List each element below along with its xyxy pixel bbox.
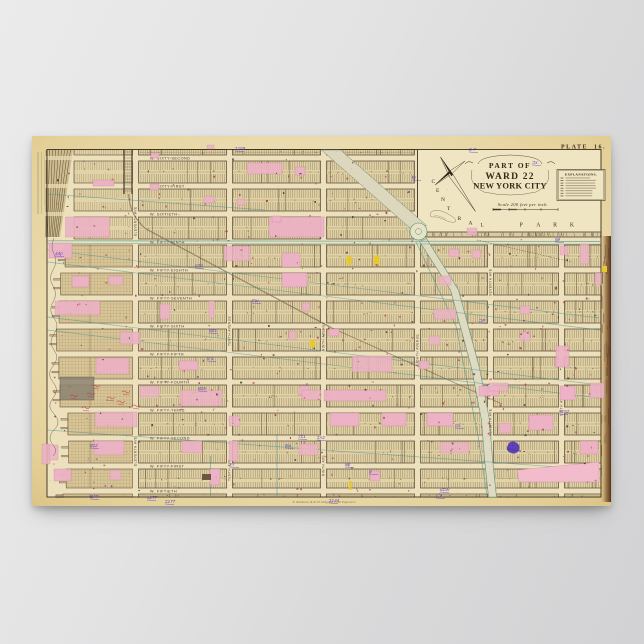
- svg-text:≠177: ≠177: [147, 495, 158, 500]
- svg-text:44ɲ: 44ɲ: [55, 251, 63, 256]
- svg-text:8·1: 8·1: [207, 356, 214, 361]
- svg-text:7≠1: 7≠1: [298, 434, 306, 439]
- svg-text:R: R: [458, 216, 462, 222]
- svg-text:PLATE 16.: PLATE 16.: [561, 145, 606, 151]
- svg-text:Scale 200 feet per inch.: Scale 200 feet per inch.: [498, 202, 548, 207]
- svg-text:R: R: [553, 223, 557, 229]
- svg-text:W. FIFTY-SEVENTH: W. FIFTY-SEVENTH: [150, 296, 192, 300]
- svg-text:SEVENTH AVE: SEVENTH AVE: [489, 409, 493, 436]
- svg-text:Fɯ: Fɯ: [252, 298, 259, 303]
- svg-text:W. FIFTY-NINTH: W. FIFTY-NINTH: [150, 240, 185, 244]
- svg-text:ɬ9: ɬ9: [411, 175, 416, 180]
- svg-text:N: N: [441, 197, 445, 203]
- svg-text:8≠5: 8≠5: [209, 328, 217, 333]
- svg-text:TENTH AVENUE: TENTH AVENUE: [228, 316, 232, 346]
- svg-text:NEW YORK CITY: NEW YORK CITY: [473, 181, 546, 191]
- svg-text:W. FIFTY-THIRD: W. FIFTY-THIRD: [150, 408, 185, 412]
- svg-text:W. FIFTIETH: W. FIFTIETH: [150, 489, 177, 493]
- svg-text:≠×2: ≠×2: [317, 435, 325, 440]
- svg-text:EXPLANATIONS.: EXPLANATIONS.: [565, 172, 597, 176]
- svg-text:W. FIFTY-SIXTH: W. FIFTY-SIXTH: [150, 324, 184, 328]
- svg-text:SEVENTH AVE: SEVENTH AVE: [489, 269, 493, 296]
- svg-text:W. FIFTY-EIGHTH: W. FIFTY-EIGHTH: [150, 268, 188, 272]
- svg-text:W. SIXTIETH: W. SIXTIETH: [150, 212, 178, 216]
- svg-text:PART OF: PART OF: [489, 161, 531, 170]
- svg-text:P: P: [520, 223, 523, 229]
- svg-text:NINTH AVE: NINTH AVE: [322, 455, 326, 476]
- svg-text:8157: 8157: [559, 409, 570, 414]
- svg-text:8·7: 8·7: [469, 147, 476, 152]
- svg-text:ELEVENTH AVE: ELEVENTH AVE: [134, 206, 138, 236]
- svg-text:8ɸ: 8ɸ: [345, 462, 351, 467]
- svg-text:8ɯ: 8ɯ: [285, 443, 292, 448]
- svg-text:Ɔx: Ɔx: [532, 160, 538, 165]
- svg-text:ƆP: ƆP: [479, 318, 486, 323]
- svg-text:W. FIFTY-FIFTH: W. FIFTY-FIFTH: [150, 352, 184, 356]
- svg-text:ELEVENTH AVE: ELEVENTH AVE: [134, 436, 138, 466]
- svg-text:E≠P: E≠P: [90, 494, 100, 499]
- svg-text:C: C: [432, 179, 436, 185]
- svg-text:8≠W: 8≠W: [440, 487, 450, 492]
- svg-text:A: A: [469, 221, 473, 227]
- svg-text:8≠2: 8≠2: [90, 443, 98, 448]
- svg-text:8¯: 8¯: [369, 468, 375, 474]
- svg-text:W. FIFTY-FOURTH: W. FIFTY-FOURTH: [150, 380, 189, 384]
- svg-text:≠177: ≠177: [165, 499, 176, 504]
- svg-text:W. FIFTY-FIRST: W. FIFTY-FIRST: [150, 464, 184, 468]
- svg-text:8ɇ: 8ɇ: [555, 237, 561, 242]
- svg-text:≠159: ≠159: [235, 146, 246, 151]
- svg-text:8≠9: 8≠9: [198, 386, 206, 391]
- svg-text:633: 633: [195, 263, 203, 268]
